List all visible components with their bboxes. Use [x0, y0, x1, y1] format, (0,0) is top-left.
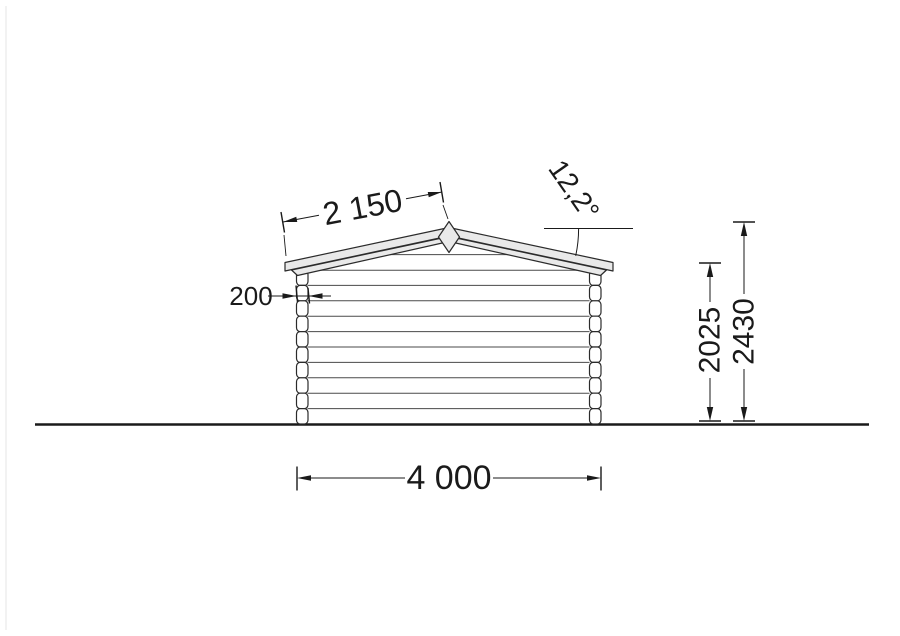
angle-arc [576, 229, 579, 256]
dim-arrowhead [707, 407, 713, 421]
dim-total-width: 4 000 [297, 459, 601, 497]
corner-post-left [297, 271, 309, 424]
dim-arrowhead [587, 475, 601, 480]
dim-arrowhead [282, 217, 297, 225]
dim-label-eaves-height: 2025 [694, 307, 727, 374]
dim-arrowhead [741, 407, 747, 421]
wall-logs [308, 270, 590, 408]
dim-label-roof-angle: 12,2° [542, 154, 605, 226]
dim-roof-angle: 12,2° [542, 154, 633, 256]
dim-arrowhead [741, 222, 747, 236]
dim-arrowhead [283, 293, 297, 298]
dim-extension-line [443, 205, 448, 219]
elevation-drawing-page: 2 150 12,2° 200 2025 2430 [0, 0, 900, 636]
dim-eaves-height: 2025 [694, 263, 727, 421]
dim-label-total-width: 4 000 [406, 459, 491, 497]
dim-arrowhead [297, 475, 311, 480]
dim-ridge-height: 2430 [728, 222, 761, 421]
dim-label-ridge-height: 2430 [728, 298, 761, 365]
dim-arrowhead [309, 293, 323, 298]
dim-arrowhead [428, 189, 443, 197]
dim-extension-line [284, 235, 286, 256]
dim-label-roof-slope: 2 150 [320, 182, 405, 232]
dim-label-wall-thickness: 200 [229, 281, 272, 311]
corner-post-right [590, 271, 602, 424]
dim-arrowhead [707, 263, 713, 277]
front-elevation-drawing: 2 150 12,2° 200 2025 2430 [0, 0, 900, 636]
